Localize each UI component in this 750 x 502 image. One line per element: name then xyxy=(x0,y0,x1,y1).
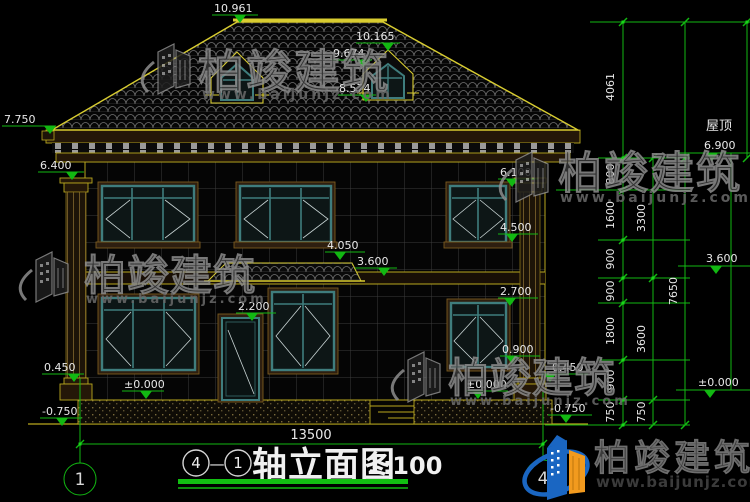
watermark-site-text: www.baijunjz.com xyxy=(560,190,750,206)
entry-door xyxy=(218,314,263,402)
title-dash: — xyxy=(210,455,225,473)
title-axis-start-number: 4 xyxy=(191,454,201,472)
level-2f-window-bottom: 4.500 xyxy=(500,221,532,234)
title-axis-end-number: 1 xyxy=(233,454,243,472)
window-1f-center xyxy=(268,288,338,374)
brand-logo: 柏竣建筑 www.baijunjz.com xyxy=(518,435,750,502)
window-2f-center xyxy=(234,182,337,248)
drawing-title: 4 — 1 轴立面图 1:100 xyxy=(178,446,442,489)
dentil-row xyxy=(52,143,574,153)
watermark-left: 柏竣建筑 www.baijunjz.com xyxy=(20,251,267,307)
cad-elevation-canvas: 10.961 10.165 9.674 8.574 7.750 6.400 6.… xyxy=(0,0,750,502)
level-canopy: 4.050 xyxy=(327,239,359,252)
dim-3300: 3300 xyxy=(635,204,648,232)
level-floor2: 3.600 xyxy=(357,255,389,268)
watermark-logo-icon xyxy=(20,252,68,302)
entry-steps xyxy=(370,400,414,424)
title-underline-thin xyxy=(178,487,408,489)
watermark-site-text: www.baijunjz.com xyxy=(450,394,631,409)
axis-bubble-left-number: 1 xyxy=(75,470,86,490)
level-dormer-peak: 10.165 xyxy=(356,30,395,43)
level-zero-right: ±0.000 xyxy=(698,376,739,389)
level-floor2-right: 3.600 xyxy=(706,252,738,265)
brand-logo-icon xyxy=(518,435,593,502)
title-scale: 1:100 xyxy=(366,452,442,480)
gutter-end xyxy=(42,131,54,140)
level-eave: 7.750 xyxy=(4,113,36,126)
dim-900-a: 900 xyxy=(604,249,617,270)
level-1f-window-top: 2.700 xyxy=(500,285,532,298)
axis-bubble-right-number: 4 xyxy=(538,469,549,489)
dim-900-b: 900 xyxy=(604,281,617,302)
level-plinth-left: 0.450 xyxy=(44,361,76,374)
dim-1800: 1800 xyxy=(604,317,617,345)
level-ground-left: -0.750 xyxy=(42,405,77,418)
title-underline-thick xyxy=(178,479,408,484)
dim-total-width: 13500 xyxy=(290,428,331,443)
dim-3600: 3600 xyxy=(635,325,648,353)
window-2f-left xyxy=(96,182,200,248)
dim-4061: 4061 xyxy=(604,73,617,101)
watermark-site-text: www.baijunjz.com xyxy=(86,292,267,307)
level-ridge: 10.961 xyxy=(214,2,253,15)
level-zero-left: ±0.000 xyxy=(124,378,165,391)
level-wall-top: 6.400 xyxy=(40,159,72,172)
watermark-site-text: www.baijunjz.com xyxy=(202,87,393,103)
dim-750-b: 750 xyxy=(635,402,648,423)
brand-website: www.baijunjz.com xyxy=(596,473,750,491)
roof-section-label: 屋顶 xyxy=(706,119,732,134)
eave-cornice xyxy=(42,130,580,162)
elevation-drawing: 10.961 10.165 9.674 8.574 7.750 6.400 6.… xyxy=(0,0,750,502)
dim-7650: 7650 xyxy=(667,277,680,305)
